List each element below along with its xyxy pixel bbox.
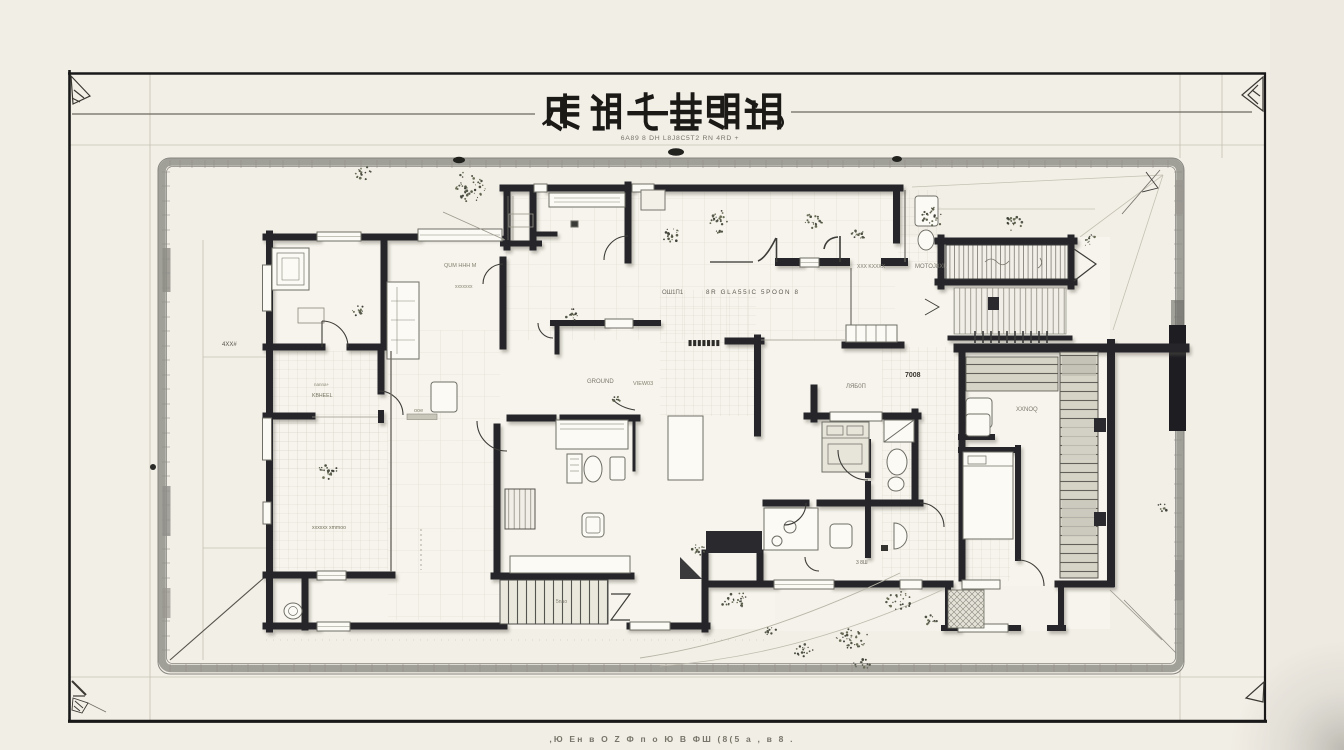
- svg-text:6A89 8 DH L8J8C5T2 RN 4RD +: 6A89 8 DH L8J8C5T2 RN 4RD +: [621, 135, 739, 142]
- svg-text:nanna+: nanna+: [314, 382, 330, 387]
- svg-text:▮▮▮▮▮▮▮: ▮▮▮▮▮▮▮: [688, 338, 720, 347]
- svg-text:7008: 7008: [905, 372, 921, 379]
- svg-text:KBHEEL: KBHEEL: [312, 393, 333, 399]
- svg-text:xxxxxx xmmoo: xxxxxx xmmoo: [312, 525, 346, 531]
- svg-text:ooe: ooe: [414, 408, 423, 414]
- svg-text:,Ю Ен в О Z Ф п о Ю В ФШ (8(5: ,Ю Ен в О Z Ф п о Ю В ФШ (8(5 а , в 8 .: [549, 734, 794, 744]
- svg-text:8R GLA55IC 5POON 8: 8R GLA55IC 5POON 8: [706, 289, 800, 296]
- svg-text:GROUND: GROUND: [587, 379, 614, 385]
- svg-text:XXNOQ: XXNOQ: [1016, 407, 1038, 413]
- svg-text:ЛЯБ0П: ЛЯБ0П: [846, 384, 866, 390]
- svg-text:4XX#: 4XX#: [222, 342, 237, 348]
- svg-text:MOTOJ8XL: MOTOJ8XL: [915, 264, 947, 270]
- svg-text:ОШ1П1: ОШ1П1: [662, 290, 684, 296]
- svg-text:3 8Ш: 3 8Ш: [856, 560, 868, 566]
- svg-text:5nao: 5nao: [556, 599, 567, 605]
- svg-text:QUM HHH M: QUM HHH M: [444, 263, 477, 269]
- svg-text:VIEW03: VIEW03: [633, 381, 653, 387]
- svg-text:xxxxxxx: xxxxxxx: [455, 284, 473, 290]
- svg-text:XXX KXXXX: XXX KXXXX: [857, 264, 886, 270]
